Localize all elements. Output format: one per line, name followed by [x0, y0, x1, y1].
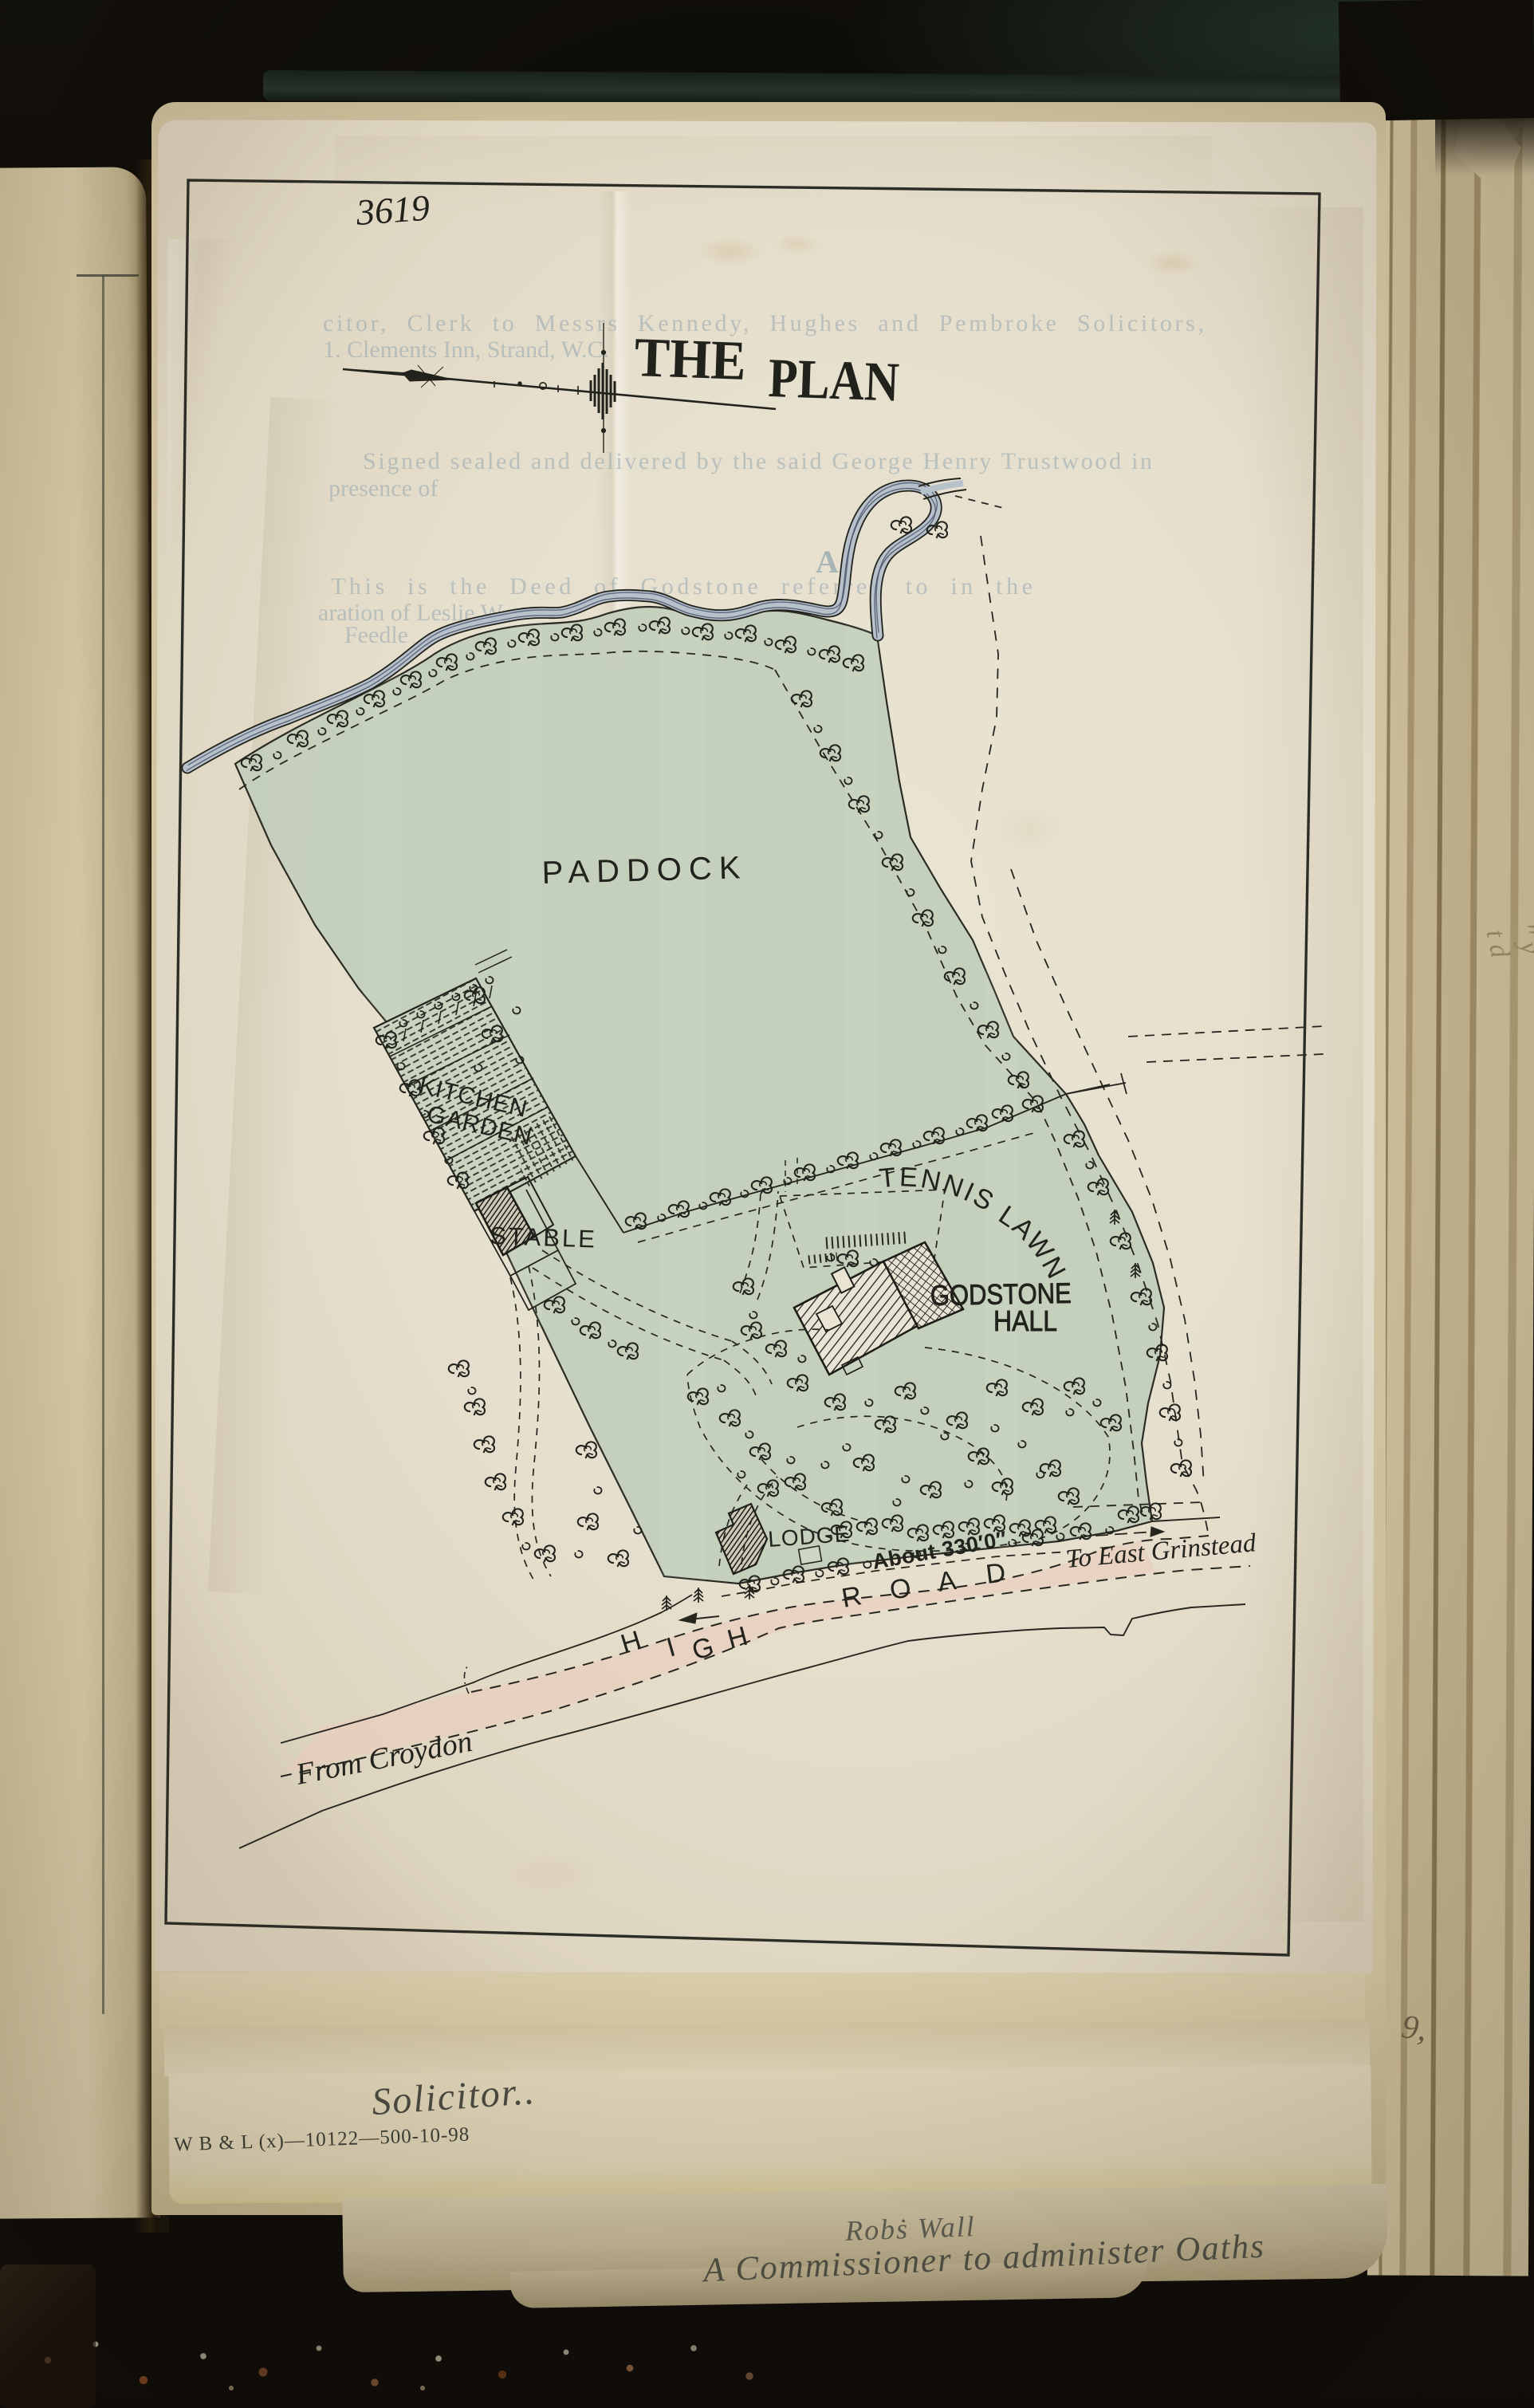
- svg-text:R: R: [840, 1580, 864, 1614]
- svg-text:Feedle: Feedle: [344, 622, 408, 648]
- svg-text:This is the Deed of Godst: This is the Deed of Godstone referred to…: [331, 573, 1032, 600]
- svg-text:PLAN: PLAN: [767, 348, 900, 414]
- svg-text:Signed sealed and delivered by: Signed sealed and delivered by the said …: [363, 448, 1152, 474]
- svg-text:O: O: [887, 1572, 913, 1606]
- svg-text:citor, Clerk to Messrs Ken: citor, Clerk to Messrs Kennedy, Hughes a…: [323, 310, 1204, 336]
- svg-text:HALL: HALL: [993, 1304, 1057, 1337]
- svg-text:THE: THE: [633, 327, 747, 392]
- svg-text:STABLE: STABLE: [490, 1222, 598, 1253]
- svg-text:A: A: [936, 1565, 958, 1598]
- svg-text:3619: 3619: [354, 187, 431, 233]
- svg-text:A: A: [816, 544, 839, 580]
- svg-text:presence of: presence of: [328, 475, 438, 502]
- svg-text:1. Clements Inn, Strand, W.C.: 1. Clements Inn, Strand, W.C.: [323, 336, 609, 363]
- svg-text:D: D: [984, 1557, 1007, 1590]
- svg-text:PADDOCK: PADDOCK: [541, 850, 748, 891]
